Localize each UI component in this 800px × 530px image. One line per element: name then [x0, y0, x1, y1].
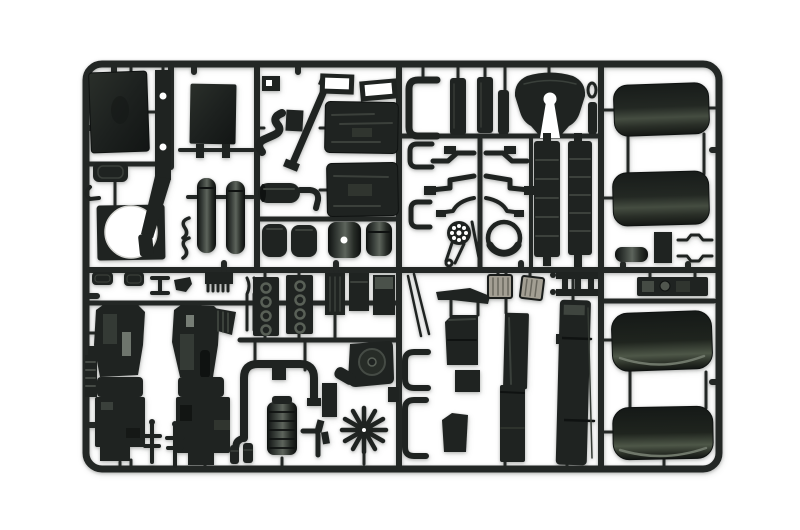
- engine-half-right-slot: [186, 315, 194, 327]
- hanger-bracket: [436, 288, 490, 304]
- engine-half-left-foot: [100, 447, 130, 461]
- engine-half-left-lower-notch: [101, 402, 113, 410]
- floor-panel-2-detail: [348, 184, 372, 196]
- spring-bar: [498, 90, 509, 134]
- clip-small-2: [321, 431, 330, 444]
- u-clamp-2: [411, 202, 430, 227]
- bumper-strip-band-2: [564, 420, 594, 421]
- axle-tree-1: [144, 424, 160, 462]
- mirror-arm-2: [678, 256, 712, 261]
- exhaust-arch-foot: [236, 438, 244, 446]
- engine-half-right-lower-detail-2: [180, 405, 192, 421]
- hook-clip: [87, 187, 100, 199]
- axle-tree-2-knob: [172, 421, 178, 427]
- bumper-strip-tab-2: [558, 414, 564, 424]
- ladder-strip-1-tab-bottom: [543, 257, 551, 266]
- air-tank-3-hole: [341, 237, 348, 244]
- fender-front-left: [613, 82, 710, 136]
- sprue: [85, 64, 719, 469]
- i-beam-bracket: [152, 278, 168, 293]
- pulley-hole-4: [452, 236, 456, 240]
- battery-step-circle: [660, 281, 670, 291]
- air-cleaner: [267, 402, 297, 455]
- chassis-slab-c: [442, 413, 468, 452]
- engine-half-right-detail: [180, 334, 194, 370]
- air-cleaner-cap: [272, 396, 292, 404]
- window-frame-2-hole: [365, 83, 393, 96]
- small-canister-1: [230, 445, 239, 464]
- suspension-z-right: [486, 176, 529, 190]
- bumper-strip-top-detail: [564, 305, 585, 316]
- bracket-panel-leg-right: [222, 144, 230, 158]
- exhaust-stack-foot: [138, 233, 154, 256]
- muffler-pipe: [300, 190, 318, 208]
- engine-half-right-collar: [178, 377, 224, 397]
- elbow-pipe-small: [303, 431, 318, 455]
- model-kit-sprue-photo: Photograph of a dark charcoal injection-…: [0, 0, 800, 530]
- suspension-arm-right: [486, 153, 527, 161]
- pulley-hub: [457, 231, 462, 236]
- engine-half-left-upper: [94, 305, 145, 377]
- radiator-fan-hub-hole: [362, 428, 366, 432]
- sprue-canvas: Photograph of a dark charcoal injection-…: [0, 0, 800, 530]
- roof-panel-shade: [111, 96, 129, 124]
- floor-panel-1-detail: [352, 128, 372, 137]
- u-clamp-1: [410, 144, 432, 167]
- shock-u-bracket-1: [405, 352, 428, 388]
- leaf-spring-1: [450, 78, 466, 135]
- belt-line-2: [455, 244, 464, 263]
- axle-ladder-cross-1: [562, 272, 568, 296]
- pulley-hole-8: [462, 226, 466, 230]
- ladder-strip-2-tab-bottom: [574, 255, 582, 267]
- clip-small-1: [315, 419, 325, 432]
- pulley-hole-2: [462, 236, 466, 240]
- s-clip-2: [183, 238, 189, 258]
- suspension-hanger-left: [424, 186, 436, 195]
- pulley-hole-1: [464, 231, 468, 235]
- battery-step-detail-2: [676, 281, 690, 292]
- axle-tree-1-knob: [149, 419, 155, 425]
- chassis-slab-b: [455, 370, 480, 392]
- floor-panel-2-groove-a: [334, 176, 388, 177]
- runner-block-small: [388, 387, 399, 402]
- engine-half-right-upper: [172, 305, 220, 377]
- u-bracket-large: [409, 80, 437, 136]
- suspension-arm-left: [433, 153, 474, 161]
- transmission-bell-hub: [368, 358, 376, 366]
- engine-half-right-lower-detail-1: [214, 420, 230, 430]
- fender-rear-left: [611, 310, 713, 371]
- engine-half-left-collar: [97, 377, 143, 397]
- comb-part: [205, 272, 233, 284]
- pulley-hole-6: [452, 226, 456, 230]
- wiper-rod-1: [408, 276, 421, 336]
- sill-strip-top: [503, 313, 529, 390]
- axle-ladder-stub-2: [550, 289, 556, 295]
- exhaust-arch-fitting: [272, 364, 286, 380]
- belt-pulley-small-hole: [448, 262, 451, 265]
- exhaust-stack-upper: [155, 70, 171, 180]
- small-box: [654, 232, 672, 263]
- axle-ladder-cross-3: [588, 272, 594, 296]
- side-bar: [588, 102, 597, 134]
- window-frame-1-hole: [325, 78, 349, 90]
- block-part-2: [349, 273, 369, 311]
- pulley-hole-3: [457, 238, 461, 242]
- angle-bracket: [174, 277, 192, 292]
- engine-half-left-detail: [103, 314, 117, 344]
- bracket-panel: [189, 84, 236, 145]
- engine-half-right-cylinder: [200, 350, 210, 378]
- suspension-z-left: [431, 176, 474, 190]
- air-tank-4: [366, 222, 392, 256]
- comb-part-teeth: [208, 284, 228, 291]
- pulley-hole-7: [457, 224, 461, 228]
- wiper-rod-2: [414, 274, 429, 334]
- muffler-cap: [260, 184, 266, 202]
- s-hose: [259, 113, 282, 152]
- sill-strip-joint: [501, 392, 524, 393]
- bumper-strip: [556, 300, 591, 466]
- s-clip-1: [183, 218, 189, 238]
- square-pad: [285, 110, 303, 132]
- floor-panel-1: [325, 101, 399, 153]
- exhaust-arch-flange: [307, 398, 321, 406]
- bracket-panel-leg-left: [196, 144, 204, 158]
- battery-step-detail-1: [642, 281, 654, 292]
- floor-panel-1-groove-b: [340, 123, 392, 124]
- engine-half-right-foot: [188, 453, 214, 465]
- sill-strip-bottom: [500, 385, 525, 462]
- drum-ring-segment: [490, 245, 518, 253]
- small-canister-2: [243, 443, 253, 463]
- fender-front-right: [612, 171, 709, 226]
- belt-line-1: [446, 243, 452, 261]
- hang-slab: [322, 383, 337, 417]
- bumper-strip-band-1: [562, 338, 591, 339]
- axle-ladder-stub-1: [550, 272, 556, 278]
- floor-panel-1-groove-a: [332, 114, 374, 115]
- exhaust-stack-hole-bottom: [160, 144, 167, 151]
- bumper-strip-tab-1: [556, 334, 562, 344]
- exhaust-stack-hole-top: [160, 93, 167, 100]
- mirror-arm-1: [678, 235, 712, 240]
- block-part-3-top: [375, 277, 393, 289]
- leaf-spring-2: [477, 77, 493, 133]
- suspension-foot-right: [514, 210, 524, 217]
- fuel-filter-cylinder: [615, 247, 648, 262]
- ladder-strip-1-tab-top: [543, 133, 551, 141]
- shock-u-bracket-2: [405, 400, 426, 456]
- axle-ladder-cross-2: [575, 272, 581, 296]
- air-tank-1: [197, 178, 216, 253]
- ladder-strip-2-tab-top: [574, 133, 582, 141]
- engine-half-left-lower-detail: [126, 428, 140, 438]
- pulley-hole-5: [450, 231, 454, 235]
- grab-ring: [588, 83, 596, 97]
- small-top-block-notch: [266, 80, 272, 86]
- suspension-foot-left: [436, 210, 446, 217]
- engine-half-left-slot: [122, 332, 131, 356]
- chassis-slab-a-edge: [449, 319, 475, 320]
